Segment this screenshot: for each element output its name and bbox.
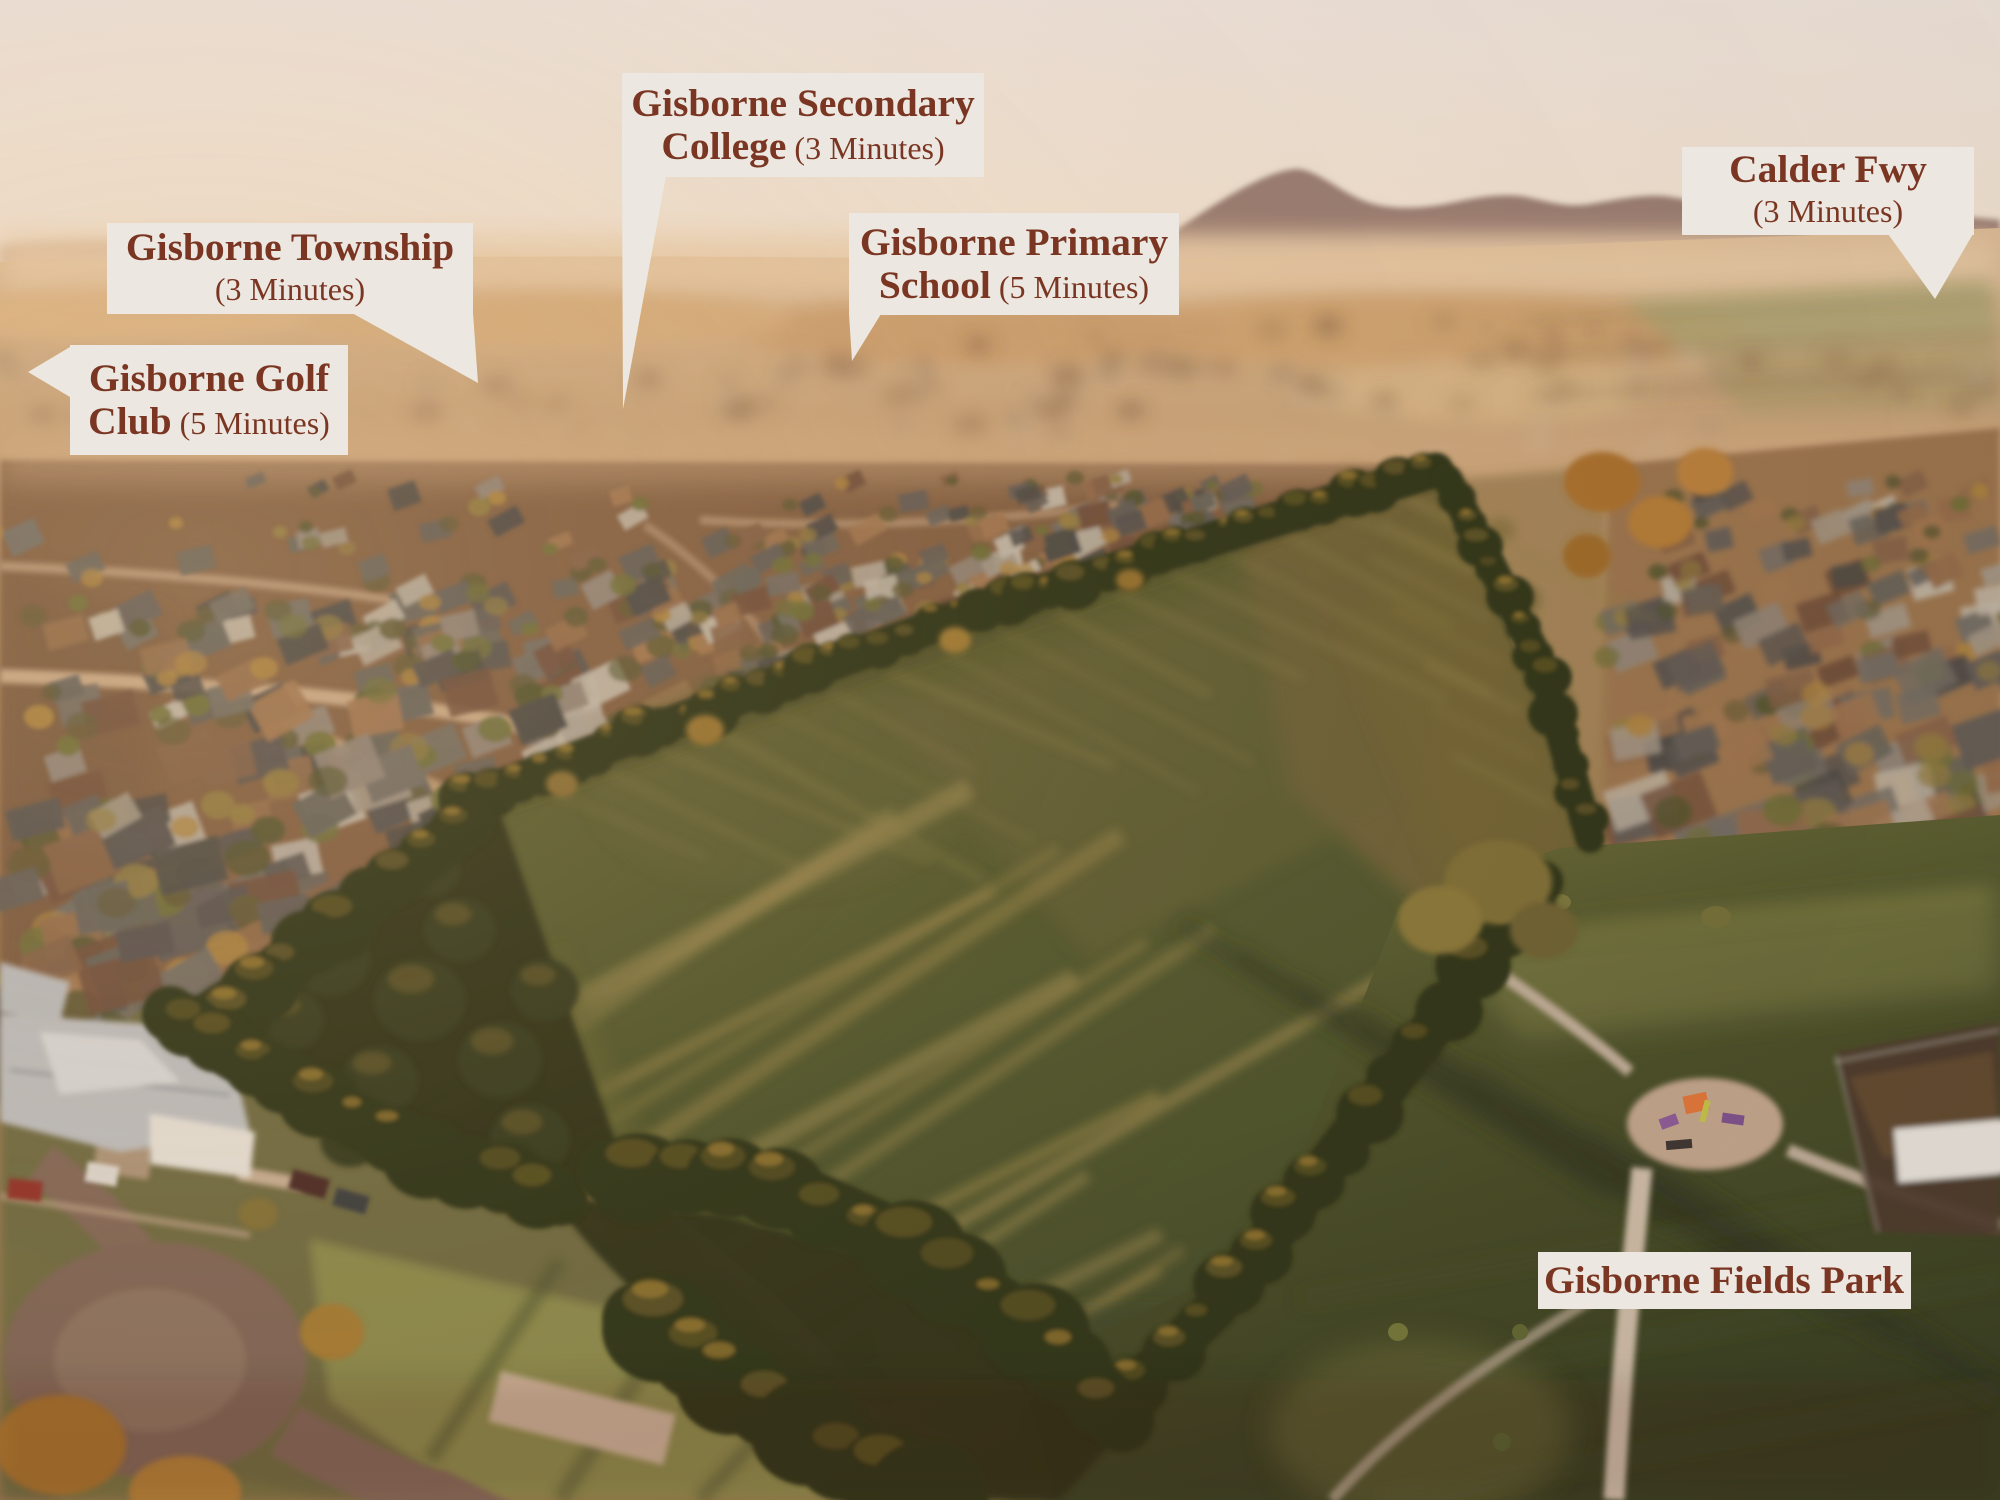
svg-text:College (3 Minutes): College (3 Minutes) [661, 124, 944, 168]
svg-text:Gisborne Secondary: Gisborne Secondary [631, 81, 975, 125]
svg-text:School (5 Minutes): School (5 Minutes) [879, 263, 1149, 307]
svg-text:Gisborne Golf: Gisborne Golf [89, 356, 330, 400]
svg-text:Gisborne Primary: Gisborne Primary [860, 220, 1169, 264]
svg-text:(3 Minutes): (3 Minutes) [1753, 193, 1903, 229]
svg-text:Gisborne Fields Park: Gisborne Fields Park [1544, 1258, 1904, 1302]
svg-text:(3 Minutes): (3 Minutes) [215, 271, 365, 307]
svg-text:Calder Fwy: Calder Fwy [1729, 147, 1927, 191]
svg-text:Gisborne Township: Gisborne Township [126, 225, 454, 269]
svg-text:Club (5 Minutes): Club (5 Minutes) [88, 399, 330, 443]
